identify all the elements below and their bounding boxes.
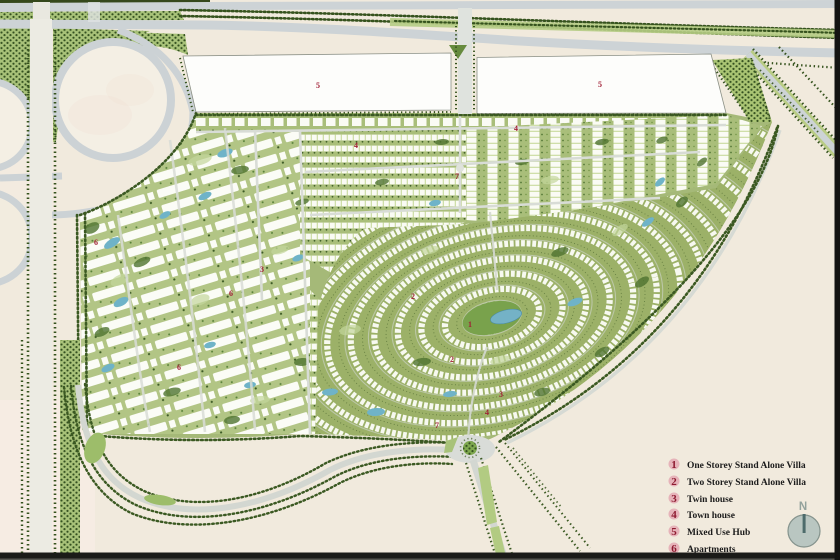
svg-text:N: N <box>799 501 807 513</box>
svg-text:2: 2 <box>411 292 415 301</box>
svg-text:7: 7 <box>455 172 459 181</box>
svg-text:One Storey Stand Alone Villa: One Storey Stand Alone Villa <box>687 461 806 471</box>
svg-text:3: 3 <box>499 390 503 399</box>
svg-text:4: 4 <box>671 509 677 521</box>
svg-text:1: 1 <box>671 459 677 471</box>
svg-text:Two Storey Stand Alone Villa: Two Storey Stand Alone Villa <box>687 478 806 488</box>
svg-text:Town house: Town house <box>687 511 735 521</box>
svg-text:5: 5 <box>671 526 677 538</box>
svg-text:2: 2 <box>671 476 677 488</box>
svg-text:1: 1 <box>468 320 472 329</box>
svg-text:4: 4 <box>514 124 518 133</box>
svg-text:Twin house: Twin house <box>687 495 733 505</box>
svg-text:2: 2 <box>450 355 454 364</box>
svg-text:5: 5 <box>598 80 602 89</box>
svg-text:6: 6 <box>177 363 181 372</box>
svg-text:6: 6 <box>94 238 98 247</box>
svg-text:4: 4 <box>354 141 358 150</box>
svg-text:3: 3 <box>260 265 264 274</box>
svg-text:3: 3 <box>671 493 677 505</box>
svg-text:6: 6 <box>229 289 233 298</box>
svg-text:7: 7 <box>435 421 439 430</box>
svg-text:Mixed Use Hub: Mixed Use Hub <box>687 528 750 538</box>
svg-text:4: 4 <box>485 408 489 417</box>
svg-text:5: 5 <box>316 81 320 90</box>
